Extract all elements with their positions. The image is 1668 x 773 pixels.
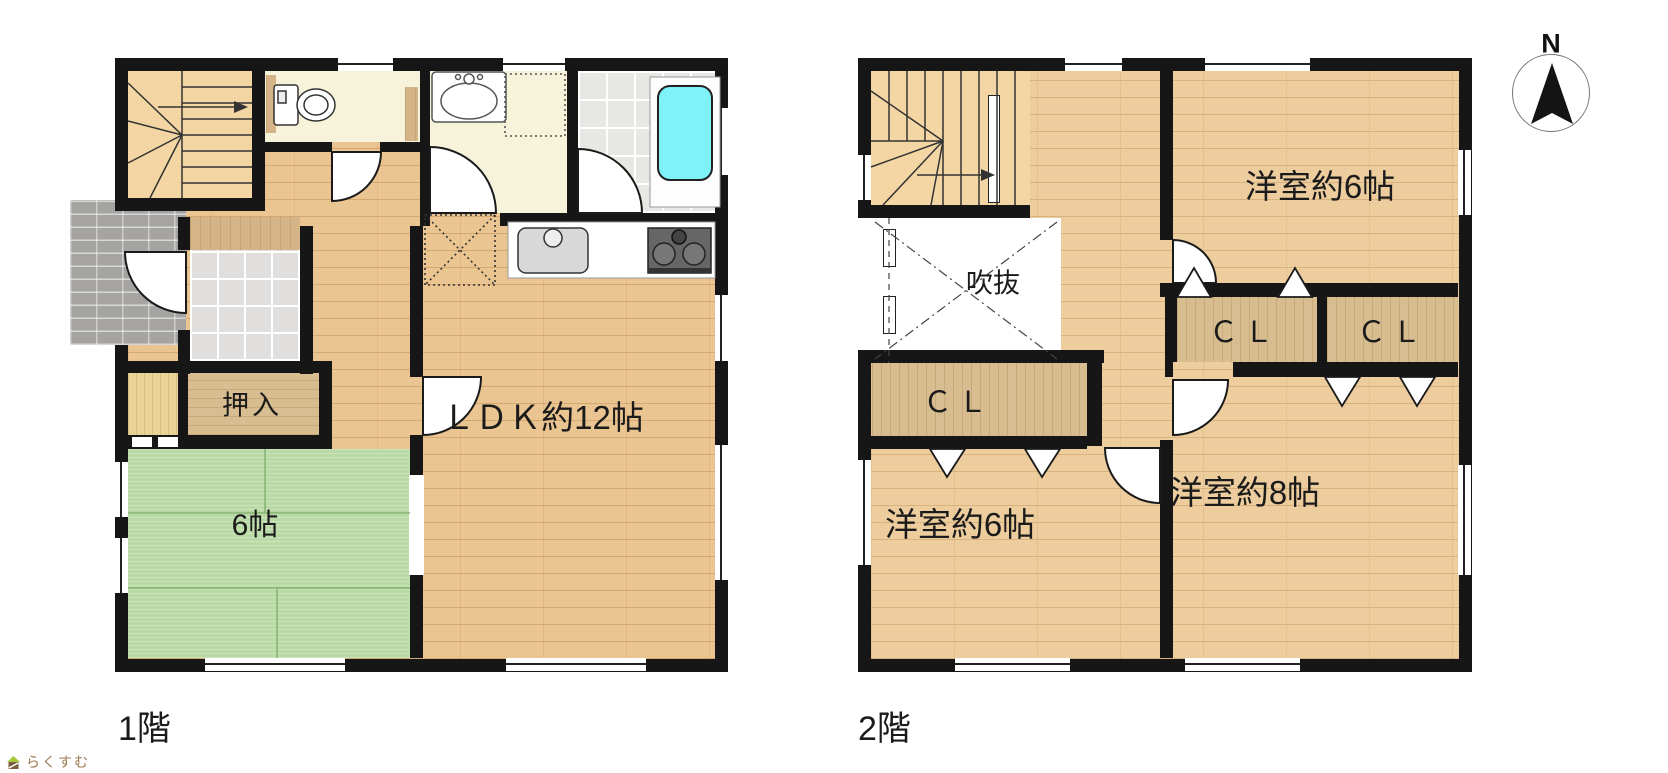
window <box>506 658 646 671</box>
window <box>338 58 393 71</box>
room-label-cl-east: ＣＬ <box>1357 309 1427 351</box>
closet-sliding-door <box>158 437 178 447</box>
wall <box>380 142 420 152</box>
window <box>955 658 1070 671</box>
window <box>715 445 728 580</box>
floor2-plan: 吹抜 ＣＬ ＣＬ ＣＬ 洋室約6帖 洋室約6帖 洋室約8帖 <box>858 58 1472 672</box>
room-label-bedroom8: 洋室約8帖 <box>1170 466 1320 514</box>
wall <box>115 198 265 211</box>
tatami-room <box>128 449 410 658</box>
wall <box>252 58 265 211</box>
logo: らくすむ <box>6 752 90 772</box>
wall <box>420 58 430 226</box>
sliding-door-opening <box>409 475 424 575</box>
stair-handrail <box>988 95 1000 203</box>
window <box>858 155 871 200</box>
window <box>1185 658 1300 671</box>
window <box>1205 58 1310 71</box>
logo-house-icon <box>6 755 21 770</box>
floor-plan-canvas: 押入 6帖 ＬＤＫ約12帖 <box>0 0 1668 773</box>
wall <box>1317 297 1327 362</box>
staircase-2f <box>871 71 1030 205</box>
wall <box>300 226 313 374</box>
stove-icon <box>648 228 711 273</box>
wall <box>178 330 190 374</box>
room-label-ldk: ＬＤＫ約12帖 <box>442 391 644 439</box>
compass-needle-icon <box>1531 63 1573 124</box>
refrigerator-area <box>425 215 495 285</box>
wall <box>1165 297 1177 362</box>
floor2-label: 2階 <box>858 701 911 750</box>
wall <box>1087 350 1102 446</box>
toilet-cabinet <box>266 75 276 133</box>
genkan-step <box>190 217 300 250</box>
room-label-oshiire: 押入 <box>222 384 282 423</box>
genkan-tile <box>190 250 300 361</box>
door-arc-bedroom6-south <box>1105 448 1160 503</box>
room-label-tatami: 6帖 <box>232 500 279 544</box>
wall <box>1160 283 1458 297</box>
window <box>715 108 728 175</box>
floor1-label: 1階 <box>118 701 171 750</box>
window <box>503 58 565 71</box>
railing-post <box>883 296 896 334</box>
entrance-porch <box>70 200 186 345</box>
window <box>1458 465 1471 575</box>
kitchen-counter <box>508 222 715 278</box>
window <box>115 538 128 593</box>
floor1-plan: 押入 6帖 ＬＤＫ約12帖 <box>115 58 728 672</box>
room-label-fukinuke: 吹抜 <box>966 262 1020 301</box>
closet-sliding-door <box>132 437 152 447</box>
wall <box>319 373 332 435</box>
toilet-shelf <box>405 87 418 141</box>
wall <box>178 217 190 250</box>
kitchen-sink-icon <box>518 228 588 273</box>
window <box>858 460 871 565</box>
door-arc-toilet <box>332 152 381 201</box>
wall <box>858 436 1087 449</box>
room-label-cl-mid: ＣＬ <box>1209 309 1279 351</box>
bathroom <box>578 71 715 213</box>
wall <box>567 58 578 226</box>
storage-strip <box>128 373 178 435</box>
window <box>205 658 345 671</box>
window <box>715 295 728 361</box>
void-wall-gap <box>858 218 871 350</box>
wall <box>858 205 1030 218</box>
door-arc-bedroom6-north <box>1173 240 1216 283</box>
wall <box>1160 58 1173 240</box>
wall <box>858 350 1104 363</box>
wall <box>115 361 332 373</box>
railing-post <box>883 229 896 267</box>
window <box>115 462 128 517</box>
room-label-cl-west: ＣＬ <box>923 379 993 421</box>
room-label-bedroom6-south: 洋室約6帖 <box>885 498 1035 546</box>
window <box>1065 58 1122 71</box>
wall <box>500 213 715 226</box>
window <box>1458 150 1471 215</box>
room-label-bedroom6-north: 洋室約6帖 <box>1245 160 1395 208</box>
staircase-1f <box>128 71 252 198</box>
wall <box>1165 362 1173 377</box>
wall <box>410 435 423 449</box>
logo-text: らくすむ <box>26 752 90 772</box>
wall <box>264 142 332 152</box>
wall <box>178 373 188 435</box>
door-arc-bedroom8 <box>1173 380 1228 435</box>
compass <box>1512 54 1590 132</box>
wall <box>410 226 423 377</box>
toilet-room <box>264 71 420 142</box>
wall <box>1233 362 1458 377</box>
washroom <box>430 71 567 213</box>
